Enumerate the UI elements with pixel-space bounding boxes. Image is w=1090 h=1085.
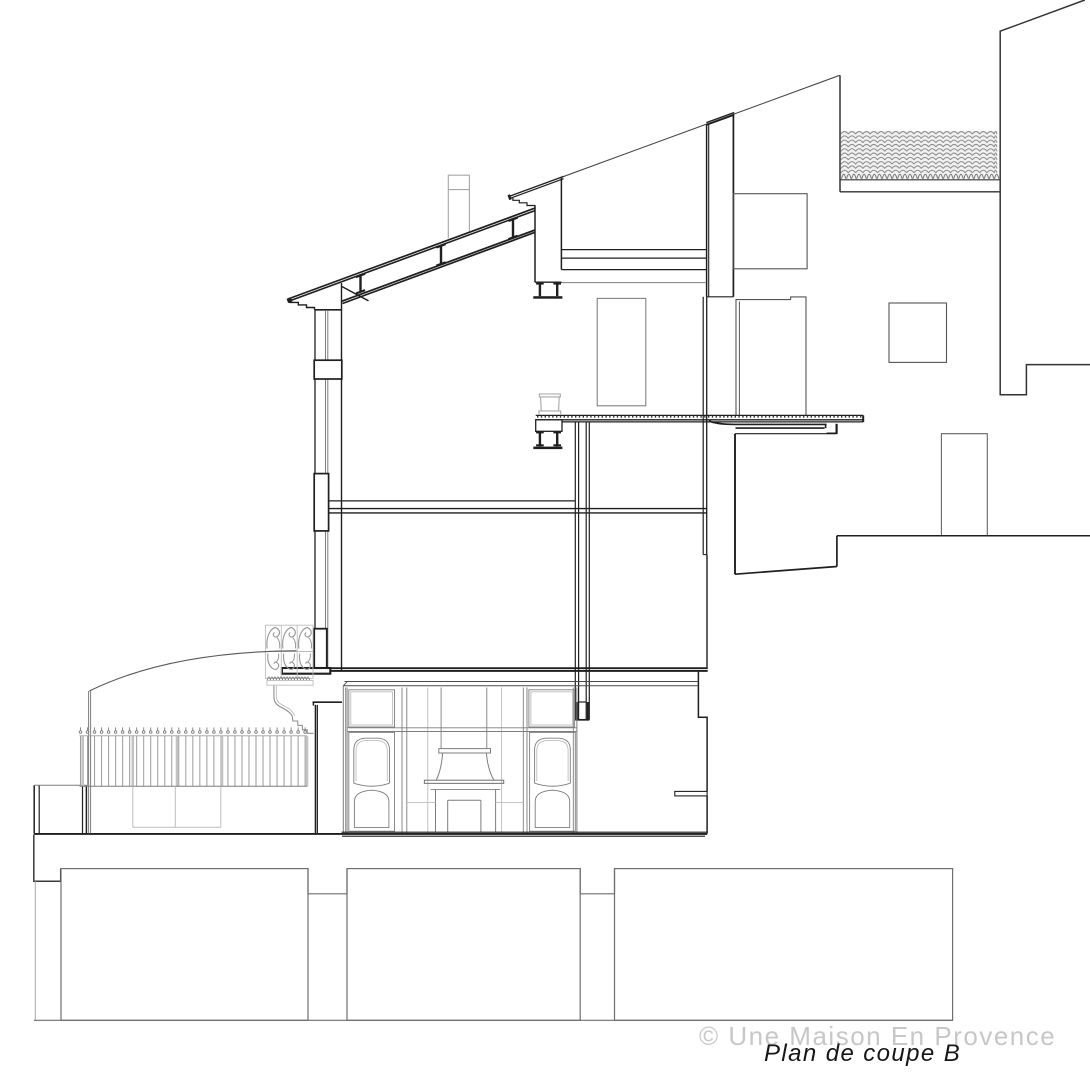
- svg-text:Plan de coupe B: Plan de coupe B: [764, 1040, 961, 1067]
